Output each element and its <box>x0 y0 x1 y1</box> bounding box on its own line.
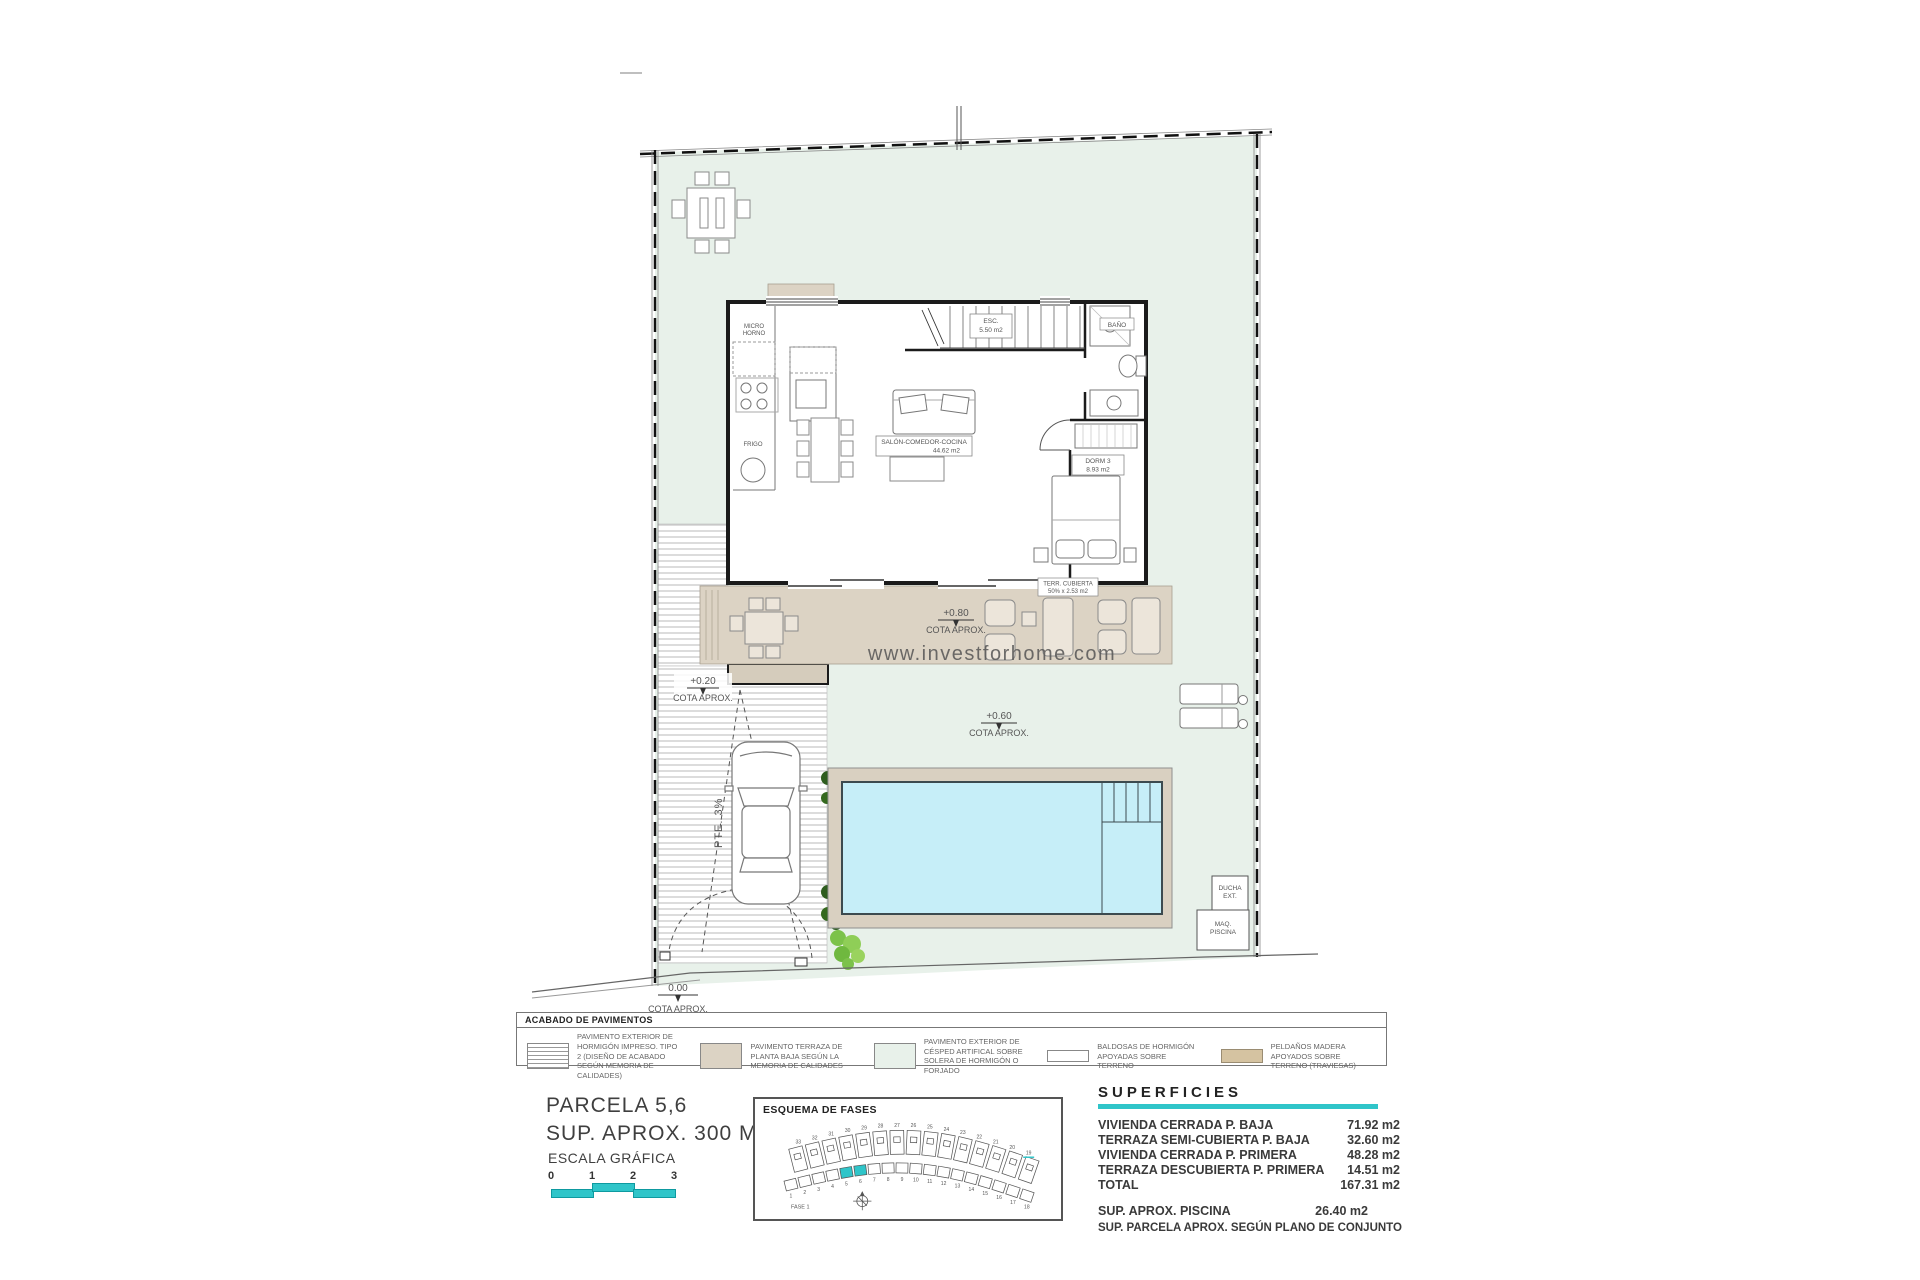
surfaces-row: VIVIENDA CERRADA P. BAJA71.92 m2 <box>1098 1118 1400 1133</box>
pool <box>828 768 1172 928</box>
phase-parcel <box>868 1163 881 1174</box>
surfaces-row: TOTAL167.31 m2 <box>1098 1178 1400 1193</box>
phase-parcel <box>798 1175 812 1188</box>
scale-tick: 0 <box>548 1170 554 1182</box>
scale-tick: 2 <box>630 1170 636 1182</box>
parcela-title: PARCELA 5,6 SUP. APROX. 300 M2 <box>546 1092 770 1149</box>
scale-segment <box>551 1189 594 1198</box>
svg-text:21: 21 <box>993 1139 999 1145</box>
horno-label: HORNO <box>743 331 766 337</box>
phase-parcel <box>1006 1184 1020 1197</box>
compass-icon <box>853 1192 871 1210</box>
svg-text:29: 29 <box>861 1125 867 1131</box>
surfaces-title: SUPERFICIES <box>1098 1084 1400 1101</box>
surfaces-table: SUPERFICIES VIVIENDA CERRADA P. BAJA71.9… <box>1098 1084 1400 1234</box>
legend-item-text: BALDOSAS DE HORMIGÓN APOYADAS SOBRE TERR… <box>1097 1042 1202 1071</box>
svg-text:32: 32 <box>812 1135 818 1141</box>
phase-parcel <box>896 1163 908 1173</box>
wardrobe <box>1075 424 1137 448</box>
phase-parcel <box>992 1180 1006 1193</box>
legend-swatch-wood <box>1221 1049 1263 1063</box>
plan-sheet: PTE. 3% <box>0 0 1920 1280</box>
phase-parcel <box>964 1172 978 1185</box>
svg-text:50% x 2.53 m2: 50% x 2.53 m2 <box>1048 589 1089 595</box>
svg-text:COTA APROX.: COTA APROX. <box>969 728 1029 738</box>
phase-parcel <box>812 1172 826 1184</box>
pool-machine-box: MAQ. PISCINA <box>1197 910 1249 950</box>
svg-text:30: 30 <box>845 1128 851 1134</box>
graphic-scale-label: ESCALA GRÁFICA <box>548 1150 676 1166</box>
pool-surface-value: 26.40 m2 <box>1315 1204 1368 1218</box>
sliding-door-left <box>788 577 884 589</box>
sofa <box>893 390 975 434</box>
svg-text:24: 24 <box>944 1127 950 1133</box>
svg-text:23: 23 <box>960 1130 966 1136</box>
legend-items: PAVIMENTO EXTERIOR DE HORMIGÓN IMPRESO. … <box>517 1028 1386 1085</box>
site-plan-svg: PTE. 3% <box>0 0 1920 1280</box>
legend-swatch-hatch <box>527 1043 569 1069</box>
surfaces-footnote: SUP. PARCELA APROX. SEGÚN PLANO DE CONJU… <box>1098 1222 1400 1234</box>
legend-swatch-tile <box>1047 1050 1089 1062</box>
phase-parcel <box>923 1164 936 1175</box>
stairs-label: ESC. 5.50 m2 <box>970 314 1012 338</box>
phase-parcel <box>882 1163 894 1173</box>
parcela-line2: SUP. APROX. 300 M2 <box>546 1120 770 1148</box>
phase-parcel-highlighted <box>840 1167 853 1179</box>
svg-text:8: 8 <box>887 1177 890 1183</box>
scale-tick: 1 <box>589 1170 595 1182</box>
micro-label: MICRO <box>744 324 764 330</box>
phase-parcel <box>951 1169 965 1181</box>
parcela-line1: PARCELA 5,6 <box>546 1092 770 1120</box>
svg-text:22: 22 <box>977 1134 983 1140</box>
pool-surface-label: SUP. APROX. PISCINA <box>1098 1204 1231 1218</box>
svg-text:4: 4 <box>831 1184 834 1190</box>
svg-text:6: 6 <box>859 1179 862 1185</box>
svg-text:31: 31 <box>828 1132 834 1138</box>
phase-parcel <box>937 1166 950 1178</box>
svg-text:9: 9 <box>901 1177 904 1183</box>
scale-tick: 3 <box>671 1170 677 1182</box>
legend-item-text: PAVIMENTO EXTERIOR DE HORMIGÓN IMPRESO. … <box>577 1032 682 1081</box>
scale-bar: 0123 <box>548 1170 698 1200</box>
cota-000: 0.00 COTA APROX. <box>648 983 708 1014</box>
svg-text:16: 16 <box>996 1195 1002 1201</box>
window-top-left <box>766 296 838 308</box>
superficies-rows: VIVIENDA CERRADA P. BAJA71.92 m2TERRAZA … <box>1098 1118 1400 1193</box>
legend-item: PAVIMENTO EXTERIOR DE CÉSPED ARTIFICAL S… <box>874 1037 1029 1076</box>
cota-020: +0.20 COTA APROX. <box>673 673 733 703</box>
svg-text:5: 5 <box>845 1181 848 1187</box>
svg-text:26: 26 <box>911 1123 917 1129</box>
phases-title: ESQUEMA DE FASES <box>763 1104 1053 1116</box>
svg-text:COTA APROX.: COTA APROX. <box>926 625 986 635</box>
svg-text:DUCHA: DUCHA <box>1218 885 1242 892</box>
legend-item-text: PAVIMENTO TERRAZA DE PLANTA BAJA SEGÚN L… <box>750 1042 855 1071</box>
phase-parcel <box>910 1163 923 1174</box>
svg-text:19: 19 <box>1026 1150 1032 1156</box>
watermark: www.investforhome.com <box>867 643 1116 665</box>
legend-item: BALDOSAS DE HORMIGÓN APOYADAS SOBRE TERR… <box>1047 1042 1202 1071</box>
svg-text:17: 17 <box>1010 1200 1016 1206</box>
svg-text:BAÑO: BAÑO <box>1108 320 1126 329</box>
house: MICRO HORNO FRIGO <box>728 296 1146 589</box>
window-top-right <box>1040 296 1070 308</box>
pavement-legend: ACABADO DE PAVIMENTOS PAVIMENTO EXTERIOR… <box>516 1012 1387 1066</box>
phase-parcel-highlighted <box>854 1165 867 1177</box>
carport-beam <box>728 664 828 684</box>
svg-text:11: 11 <box>927 1179 932 1185</box>
pool-surface-row: SUP. APROX. PISCINA 26.40 m2 <box>1098 1204 1368 1218</box>
svg-text:20: 20 <box>1009 1145 1015 1151</box>
svg-text:1: 1 <box>790 1193 793 1199</box>
svg-text:+0.60: +0.60 <box>986 711 1012 722</box>
frigo-label: FRIGO <box>744 442 763 448</box>
fase1-label: FASE 1 <box>791 1204 810 1210</box>
driveway-slope-label: PTE. 3% <box>713 798 725 848</box>
legend-title: ACABADO DE PAVIMENTOS <box>517 1013 1386 1028</box>
svg-text:EXT.: EXT. <box>1223 893 1237 900</box>
phase-parcel <box>826 1169 840 1181</box>
kitchen-island <box>790 347 836 421</box>
svg-text:33: 33 <box>795 1140 801 1146</box>
legend-item-text: PAVIMENTO EXTERIOR DE CÉSPED ARTIFICAL S… <box>924 1037 1029 1076</box>
svg-text:15: 15 <box>982 1191 988 1197</box>
svg-text:0.00: 0.00 <box>668 983 688 994</box>
legend-swatch-grass <box>874 1043 916 1069</box>
svg-text:13: 13 <box>955 1184 961 1190</box>
svg-text:27: 27 <box>894 1123 900 1129</box>
svg-text:5.50 m2: 5.50 m2 <box>979 327 1003 334</box>
svg-text:8.93 m2: 8.93 m2 <box>1086 467 1110 474</box>
bathroom-label: BAÑO <box>1100 318 1134 330</box>
scale-segment <box>592 1183 635 1192</box>
dining-table <box>797 418 853 482</box>
svg-text:PISCINA: PISCINA <box>1210 929 1237 936</box>
svg-text:SALÓN-COMEDOR-COCINA: SALÓN-COMEDOR-COCINA <box>881 437 967 446</box>
outdoor-shower-box: DUCHA EXT. <box>1212 876 1248 910</box>
surfaces-row: TERRAZA DESCUBIERTA P. PRIMERA14.51 m2 <box>1098 1163 1400 1178</box>
living-label: SALÓN-COMEDOR-COCINA 44.62 m2 <box>876 436 972 456</box>
svg-text:2: 2 <box>803 1190 806 1196</box>
svg-text:3: 3 <box>817 1187 820 1193</box>
phase-parcel <box>978 1176 992 1189</box>
svg-text:COTA APROX.: COTA APROX. <box>673 693 733 703</box>
surfaces-row: TERRAZA SEMI-CUBIERTA P. BAJA32.60 m2 <box>1098 1133 1400 1148</box>
phase-parcel <box>1020 1189 1034 1202</box>
svg-text:+0.80: +0.80 <box>943 608 969 619</box>
legend-swatch-terrace <box>700 1043 742 1069</box>
svg-text:44.62 m2: 44.62 m2 <box>933 448 960 455</box>
legend-item: PELDAÑOS MADERA APOYADOS SOBRE TERRENO (… <box>1221 1042 1376 1071</box>
svg-text:10: 10 <box>913 1177 919 1183</box>
svg-text:MAQ.: MAQ. <box>1215 921 1232 928</box>
svg-text:ESC.: ESC. <box>983 318 998 325</box>
phases-scheme-box: ESQUEMA DE FASES 33323130292827262524232… <box>753 1097 1063 1221</box>
covered-terrace-label: TERR. CUBIERTA 50% x 2.53 m2 <box>1038 578 1098 596</box>
legend-item: PAVIMENTO TERRAZA DE PLANTA BAJA SEGÚN L… <box>700 1042 855 1071</box>
svg-text:18: 18 <box>1024 1204 1030 1210</box>
legend-item: PAVIMENTO EXTERIOR DE HORMIGÓN IMPRESO. … <box>527 1032 682 1081</box>
svg-text:7: 7 <box>873 1178 876 1184</box>
surfaces-underline <box>1098 1104 1378 1109</box>
car <box>725 742 807 904</box>
phases-diagram: 3332313029282726252423222120191234567891… <box>763 1117 1053 1213</box>
svg-text:DORM 3: DORM 3 <box>1085 458 1111 465</box>
phase-parcel <box>784 1178 798 1191</box>
svg-text:12: 12 <box>941 1181 947 1187</box>
surfaces-row: VIVIENDA CERRADA P. PRIMERA48.28 m2 <box>1098 1148 1400 1163</box>
bedroom-label: DORM 3 8.93 m2 <box>1072 455 1124 475</box>
svg-text:14: 14 <box>969 1187 975 1193</box>
svg-text:28: 28 <box>878 1124 884 1130</box>
svg-text:TERR. CUBIERTA: TERR. CUBIERTA <box>1043 582 1092 588</box>
legend-item-text: PELDAÑOS MADERA APOYADOS SOBRE TERRENO (… <box>1271 1042 1376 1071</box>
svg-text:25: 25 <box>927 1124 933 1130</box>
scale-segment <box>633 1189 676 1198</box>
sliding-door-right <box>938 577 1046 589</box>
svg-text:+0.20: +0.20 <box>690 676 716 687</box>
coffee-table <box>890 457 944 481</box>
